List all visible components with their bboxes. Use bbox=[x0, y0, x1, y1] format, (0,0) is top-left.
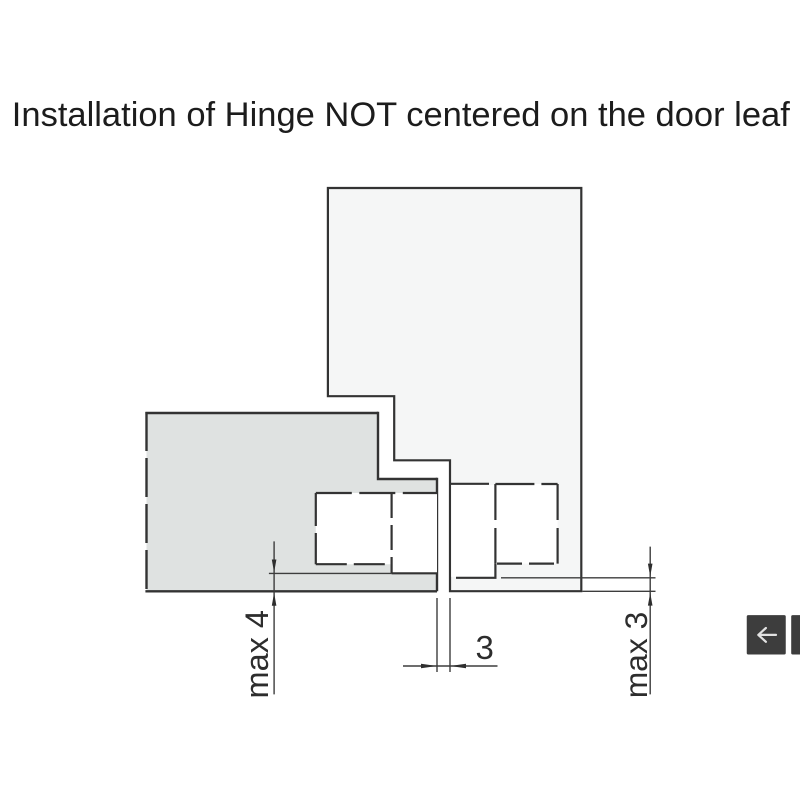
svg-text:Installation of Hinge NOT cent: Installation of Hinge NOT centered on th… bbox=[12, 96, 790, 134]
svg-text:max 3: max 3 bbox=[618, 612, 654, 699]
svg-text:3: 3 bbox=[476, 629, 494, 666]
svg-text:max 4: max 4 bbox=[239, 610, 275, 699]
